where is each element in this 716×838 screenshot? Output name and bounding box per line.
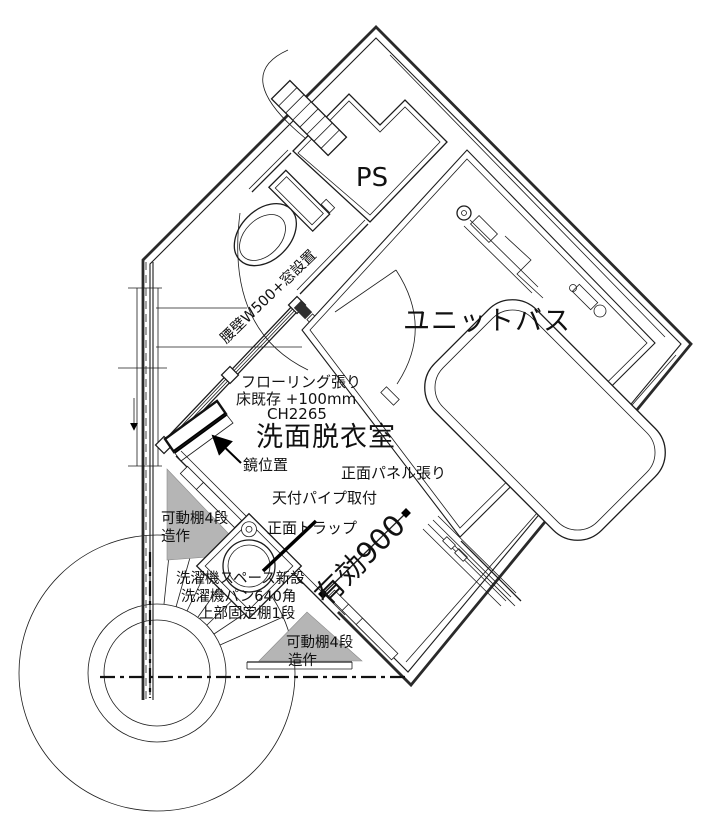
shelf-left-label-2: 造作 xyxy=(161,528,190,545)
fixed-shelf-label: 上部固定棚1段 xyxy=(199,605,295,622)
shelf-bottom-label-2: 造作 xyxy=(288,652,317,669)
flooring-label: フローリング張り xyxy=(241,373,361,391)
floor-plan-page: PS ユニットバス 腰壁W500+窓設置 フローリング張り 床既存 +100mm… xyxy=(0,0,716,838)
ceiling-pipe-label: 天付パイプ取付 xyxy=(272,489,377,507)
corridor-shelf-band xyxy=(423,516,521,606)
front-trap-label: 正面トラップ xyxy=(267,519,357,537)
front-panel-label: 正面パネル張り xyxy=(341,464,446,482)
mirror-label: 鏡位置 xyxy=(243,456,288,474)
unit-bath-label: ユニットバス xyxy=(403,306,571,337)
mirror-leader-arrow xyxy=(213,436,241,463)
floor-plan-canvas: PS ユニットバス 腰壁W500+窓設置 フローリング張り 床既存 +100mm… xyxy=(0,0,716,838)
stair-mid-circle xyxy=(88,604,226,742)
shelf-left-label-1: 可動棚4段 xyxy=(161,510,228,527)
toilet-fixture xyxy=(218,165,335,282)
shelf-bottom-label-1: 可動棚4段 xyxy=(286,634,353,651)
vanity-mirror xyxy=(165,401,233,461)
ceiling-height-label: CH2265 xyxy=(267,405,327,423)
stair-inner-circle xyxy=(104,620,210,726)
washer-space-label: 洗濯機スペース新設 xyxy=(176,570,305,587)
washroom-label: 洗面脱衣室 xyxy=(256,422,396,453)
washer-pan-label: 洗濯機パン640角 xyxy=(181,588,296,605)
ps-label: PS xyxy=(356,163,388,193)
